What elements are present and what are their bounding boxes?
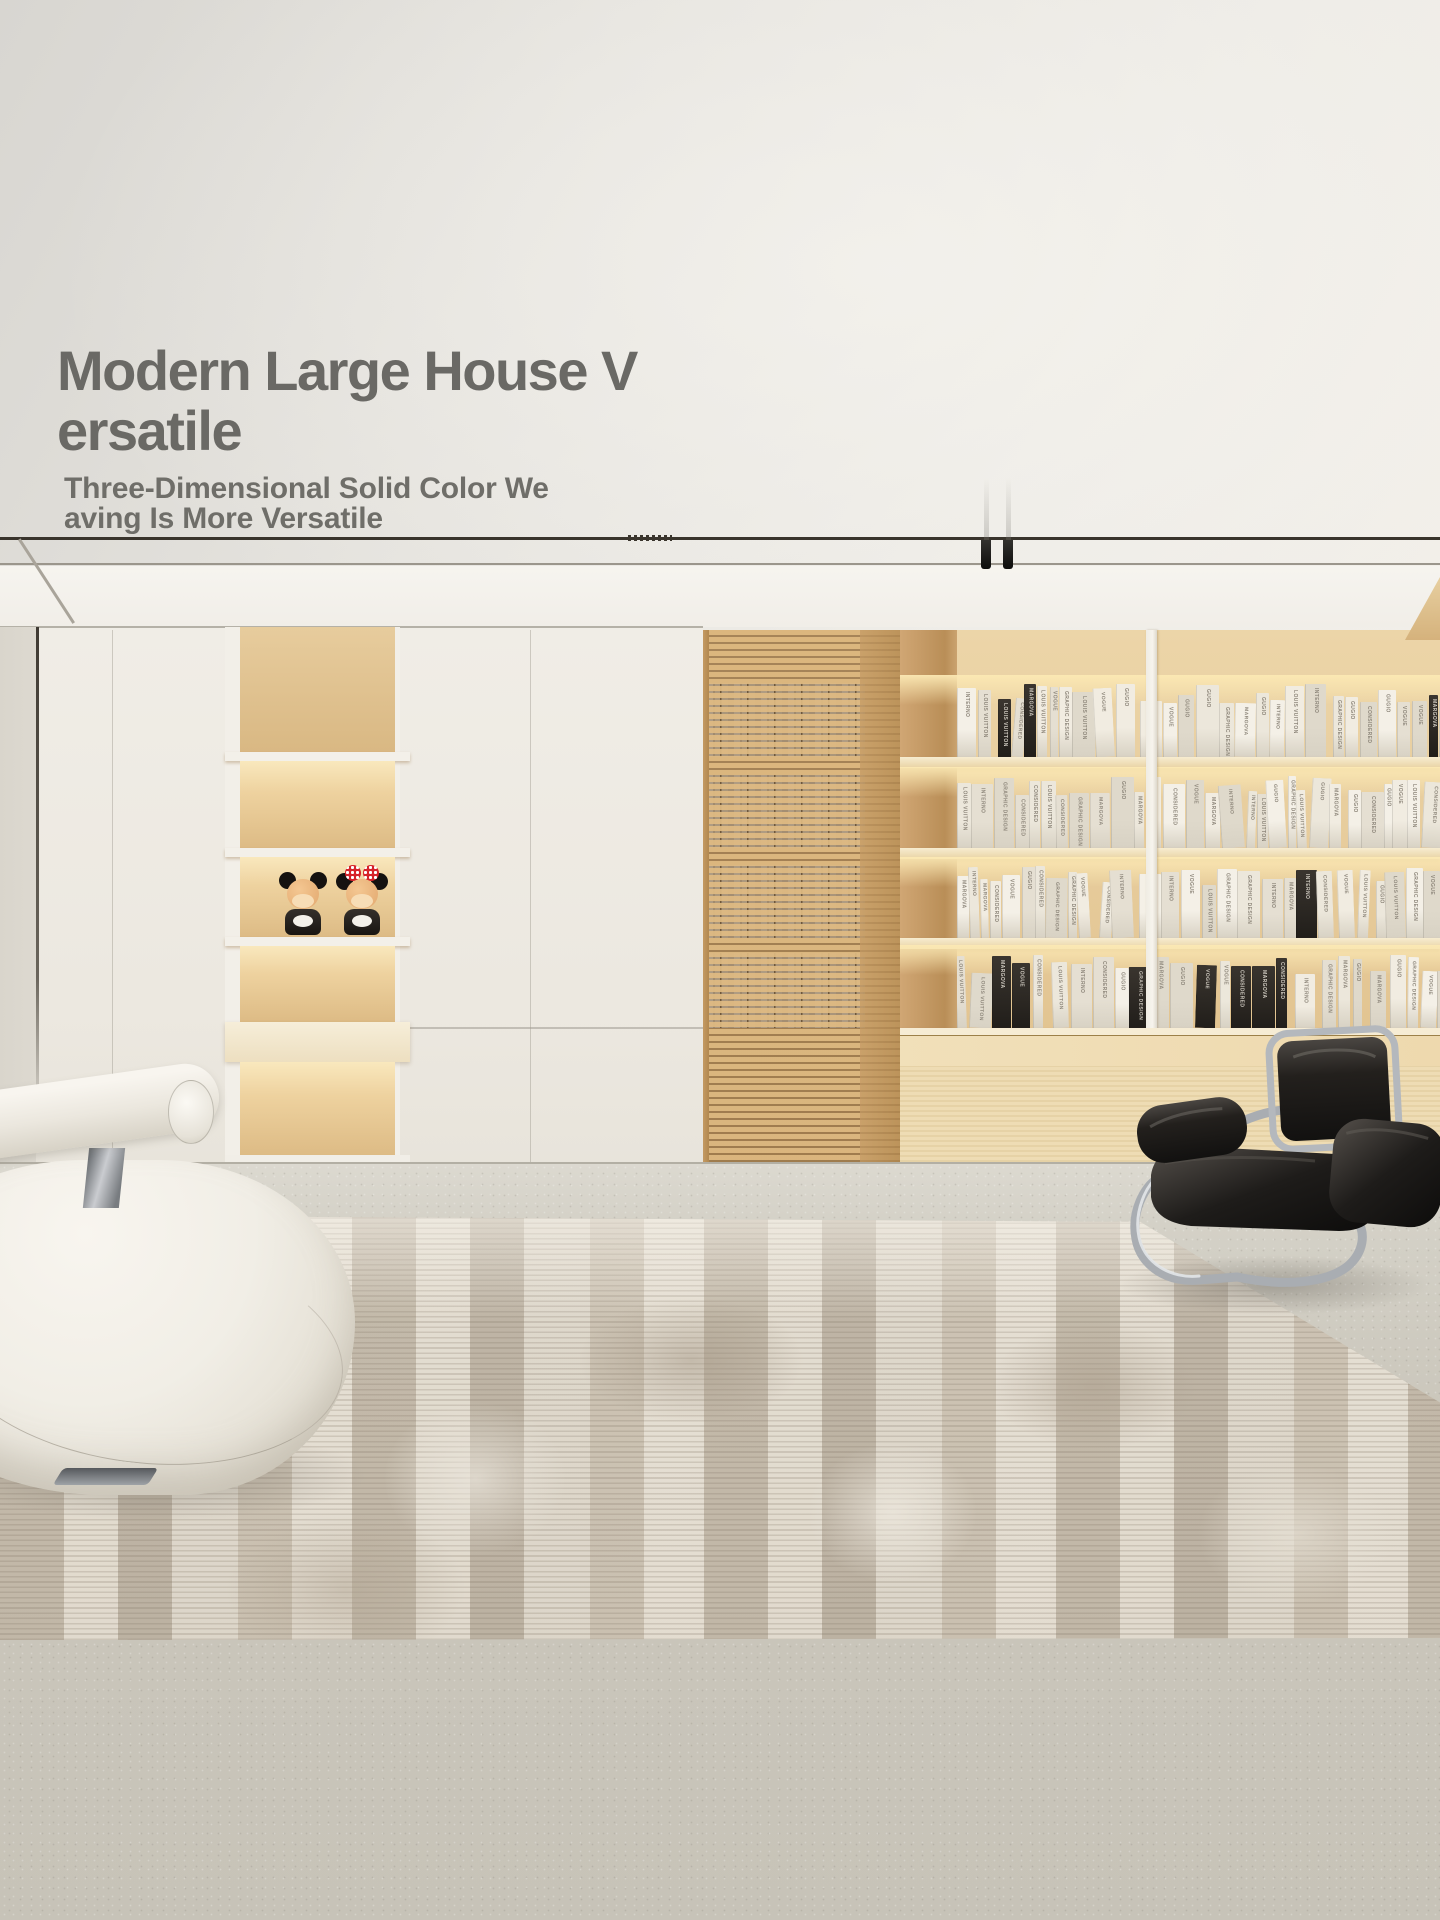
book-spine: INTERNO bbox=[1218, 784, 1245, 848]
book-spine: VOGUE bbox=[1337, 870, 1355, 938]
book-spine-title: MARGOVA bbox=[1028, 688, 1034, 717]
leather-chrome-chair bbox=[1085, 1025, 1440, 1325]
book-spine: INTERNO bbox=[1246, 791, 1257, 848]
book-spine-title: GUGIO bbox=[1386, 788, 1392, 807]
book-spine: MARGOVA bbox=[1370, 971, 1386, 1028]
book-spine-title: LOUIS VUITTON bbox=[982, 694, 988, 738]
sofa-backrest-endcap bbox=[168, 1080, 214, 1144]
book-spine-title: CONSIDERED bbox=[1032, 785, 1038, 822]
book-spine-title: LOUIS VUITTON bbox=[1081, 696, 1087, 740]
book-spine-title: INTERNO bbox=[964, 692, 970, 717]
book-spine-title: GUGIO bbox=[1123, 688, 1129, 707]
book-spine: GRAPHIC DESIGN bbox=[1406, 868, 1423, 938]
book-spine-title: CONSIDERED bbox=[1059, 799, 1065, 836]
book-spine: GUGIO bbox=[1265, 780, 1287, 848]
book-spine: CONSIDERED bbox=[1093, 957, 1114, 1028]
book-spine-title: CONSIDERED bbox=[993, 885, 999, 922]
book-spine: VOGUE bbox=[1050, 687, 1058, 757]
niche-shelf bbox=[225, 937, 410, 946]
book-spine: CONSIDERED bbox=[1015, 795, 1029, 848]
book-spine-title: MARGOVA bbox=[1242, 707, 1249, 736]
book-spine-title: LOUIS VUITTON bbox=[962, 787, 968, 831]
wood-slat-screen bbox=[703, 630, 900, 1163]
display-niche-interior bbox=[240, 627, 395, 1155]
book-spine-title: CONSIDERED bbox=[1038, 870, 1044, 907]
book-spine: LOUIS VUITTON bbox=[1357, 870, 1371, 938]
book-spine-title: GUGIO bbox=[1272, 784, 1279, 803]
book-spine: MARGOVA bbox=[1024, 684, 1036, 757]
book-spine: LOUIS VUITTON bbox=[1037, 686, 1047, 757]
book-spine: GUGIO bbox=[1353, 959, 1362, 1028]
book-spine-title: INTERNO bbox=[1249, 795, 1256, 821]
book-spine-title: CONSIDERED bbox=[1279, 962, 1285, 999]
minnie-muzzle bbox=[351, 894, 373, 908]
ceiling-spotlight-icon bbox=[1003, 540, 1013, 569]
book-spine: GRAPHIC DESIGN bbox=[1219, 703, 1234, 757]
book-spine-title: GUGIO bbox=[1026, 871, 1032, 890]
book-spine-title: GRAPHIC DESIGN bbox=[1002, 782, 1008, 831]
book-spine-title: VOGUE bbox=[1168, 707, 1174, 727]
book-spine-title: CONSIDERED bbox=[1101, 961, 1107, 998]
book-spine-title: MARGOVA bbox=[1376, 975, 1382, 1004]
book-spine: LOUIS VUITTON bbox=[1202, 885, 1216, 938]
book-spine-title: VOGUE bbox=[1204, 969, 1211, 989]
book-spine-title: LOUIS VUITTON bbox=[978, 977, 986, 1021]
book-spine-title: INTERNO bbox=[1303, 978, 1309, 1003]
book-spine-title: INTERNO bbox=[1270, 883, 1276, 908]
headline-line2: ersatile bbox=[57, 401, 697, 461]
book-spine-title: INTERNO bbox=[1227, 789, 1235, 815]
book-spine: CONSIDERED bbox=[1361, 792, 1384, 848]
book-spine: GUGIO bbox=[1345, 697, 1358, 757]
book-spine-title: GRAPHIC DESIGN bbox=[1327, 964, 1333, 1013]
book-spine-title: INTERNO bbox=[1274, 704, 1280, 729]
book-spine: MARGOVA bbox=[1134, 792, 1144, 848]
book-spine: CONSIDERED bbox=[1231, 966, 1251, 1028]
cabinet-seam bbox=[530, 630, 531, 1163]
book-spine: GRAPHIC DESIGN bbox=[1217, 869, 1237, 938]
book-spine: CONSIDERED bbox=[1055, 795, 1068, 848]
book-spine: MARGOVA bbox=[1252, 966, 1275, 1028]
book-spine: LOUIS VUITTON bbox=[998, 699, 1011, 757]
book-row: LOUIS VUITTONINTERNOGRAPHIC DESIGNCONSID… bbox=[957, 775, 1440, 848]
niche-wood-panel bbox=[240, 627, 395, 752]
book-spine-title: GRAPHIC DESIGN bbox=[1412, 872, 1418, 921]
book-spine-title: LOUIS VUITTON bbox=[1040, 690, 1046, 734]
book-spine-title: LOUIS VUITTON bbox=[1292, 690, 1298, 734]
book-spine-title: LOUIS VUITTON bbox=[1207, 889, 1213, 933]
book-spine: CONSIDERED bbox=[990, 881, 1001, 938]
mickey-muzzle bbox=[292, 894, 314, 908]
book-spine: GRAPHIC DESIGN bbox=[1288, 776, 1296, 848]
book-spine: GRAPHIC DESIGN bbox=[994, 778, 1014, 848]
cabinet-dark-seam bbox=[36, 627, 39, 1127]
book-spine: GUGIO bbox=[1116, 684, 1135, 757]
book-spine-title: VOGUE bbox=[1188, 874, 1194, 894]
book-spine-title: GUGIO bbox=[1385, 694, 1391, 713]
book-row: MARGOVAINTERNOMARGOVACONSIDEREDVOGUEGUGI… bbox=[957, 865, 1440, 938]
niche-shelf bbox=[225, 752, 410, 761]
book-spine-title: GRAPHIC DESIGN bbox=[1246, 875, 1252, 924]
book-spine: GRAPHIC DESIGN bbox=[1407, 957, 1419, 1028]
book-spine-title: CONSIDERED bbox=[1020, 799, 1026, 836]
ceiling-soffit-line bbox=[0, 563, 1440, 565]
book-spine-title: VOGUE bbox=[1079, 877, 1086, 897]
book-spine: GRAPHIC DESIGN bbox=[1059, 687, 1072, 757]
book-spine: GUGIO bbox=[1170, 963, 1193, 1028]
book-spine-title: GUGIO bbox=[1355, 963, 1361, 982]
book-spine: MARGOVA bbox=[1429, 695, 1438, 757]
minnie-hands bbox=[352, 915, 372, 927]
book-spine: LOUIS VUITTON bbox=[969, 973, 993, 1028]
book-spine: GUGIO bbox=[1115, 968, 1129, 1028]
book-spine: MARGOVA bbox=[980, 879, 989, 938]
ceiling-vent-dots bbox=[628, 535, 672, 541]
book-spine-title: GUGIO bbox=[1205, 689, 1211, 708]
book-spine: GUGIO bbox=[1348, 790, 1361, 848]
book-spine-title: LOUIS VUITTON bbox=[1057, 966, 1064, 1010]
book-spine: GRAPHIC DESIGN bbox=[1069, 793, 1089, 848]
book-spine-title: CONSIDERED bbox=[1366, 706, 1372, 743]
subheadline-line2: aving Is More Versatile bbox=[64, 504, 624, 534]
book-spine-title: CONSIDERED bbox=[1321, 875, 1328, 913]
book-spine: INTERNO bbox=[1295, 974, 1315, 1028]
book-spine: INTERNO bbox=[1262, 879, 1283, 938]
book-spine: INTERNO bbox=[1269, 700, 1285, 757]
book-spine-title: LOUIS VUITTON bbox=[1392, 876, 1399, 920]
book-spine-title: MARGOVA bbox=[1288, 882, 1294, 911]
book-spine-title: MARGOVA bbox=[961, 880, 967, 909]
book-spine: VOGUE bbox=[1092, 688, 1115, 757]
book-spine-title: VOGUE bbox=[1100, 692, 1107, 712]
book-spine: MARGOVA bbox=[1338, 956, 1350, 1028]
book-spine: CONSIDERED bbox=[1360, 702, 1377, 757]
book-spine-title: MARGOVA bbox=[1210, 797, 1216, 826]
book-spine-title: GUGIO bbox=[1352, 794, 1358, 813]
book-spine-title: GUGIO bbox=[1396, 959, 1402, 978]
book-spine-title: VOGUE bbox=[1009, 879, 1015, 899]
book-spine-title: LOUIS VUITTON bbox=[1411, 784, 1417, 828]
book-spine: CONSIDERED bbox=[1163, 784, 1185, 848]
spotlight-stem bbox=[1006, 478, 1011, 540]
bookshelf-white-divider bbox=[1146, 630, 1157, 1030]
niche-lit-shelf bbox=[240, 761, 395, 848]
book-spine: MARGOVA bbox=[1329, 784, 1341, 848]
book-spine: VOGUE bbox=[1397, 702, 1410, 757]
book-spine: INTERNO bbox=[1071, 964, 1092, 1028]
book-spine-title: GRAPHIC DESIGN bbox=[1336, 700, 1342, 749]
book-spine-title: LOUIS VUITTON bbox=[957, 960, 965, 1004]
book-spine-title: VOGUE bbox=[1429, 875, 1435, 895]
book-spine: VOGUE bbox=[1075, 873, 1091, 938]
book-spine: LOUIS VUITTON bbox=[1295, 790, 1307, 848]
book-spine-title: LOUIS VUITTON bbox=[1260, 798, 1266, 842]
book-spine: CONSIDERED bbox=[1421, 782, 1440, 848]
book-spine-title: LOUIS VUITTON bbox=[1298, 794, 1305, 838]
book-spine: VOGUE bbox=[1423, 871, 1440, 938]
book-spine-title: CONSIDERED bbox=[1239, 970, 1245, 1007]
book-spine-title: INTERNO bbox=[1168, 876, 1174, 901]
book-spine: LOUIS VUITTON bbox=[1285, 686, 1304, 757]
book-spine: MARGOVA bbox=[992, 956, 1011, 1028]
book-spine: GUGIO bbox=[1384, 784, 1392, 848]
book-spine-title: VOGUE bbox=[1193, 784, 1199, 804]
minnie-mouse-figurine bbox=[336, 865, 388, 937]
book-spine-title: GUGIO bbox=[1318, 782, 1325, 801]
book-spine-title: VOGUE bbox=[1427, 975, 1434, 995]
book-spine-title: GRAPHIC DESIGN bbox=[1224, 707, 1230, 756]
book-spine: GRAPHIC DESIGN bbox=[1045, 878, 1068, 938]
book-spine-title: GRAPHIC DESIGN bbox=[1137, 971, 1143, 1020]
book-spine: LOUIS VUITTON bbox=[1051, 962, 1069, 1028]
book-spine: LOUIS VUITTON bbox=[1041, 781, 1056, 848]
book-spine: VOGUE bbox=[1163, 703, 1177, 757]
book-spine-title: CONSIDERED bbox=[1036, 959, 1042, 996]
book-spine-title: INTERNO bbox=[980, 788, 986, 813]
book-spine-title: CONSIDERED bbox=[1172, 788, 1178, 825]
niche-counter bbox=[225, 1022, 410, 1062]
book-spine: CONSIDERED bbox=[1316, 871, 1334, 938]
book-spine: LOUIS VUITTON bbox=[957, 956, 967, 1028]
book-spine: VOGUE bbox=[1412, 701, 1427, 757]
book-spine-title: GRAPHIC DESIGN bbox=[1077, 797, 1083, 846]
book-spine: CONSIDERED bbox=[1033, 955, 1043, 1028]
book-spine-title: GRAPHIC DESIGN bbox=[1410, 961, 1417, 1010]
book-spine: VOGUE bbox=[1186, 780, 1204, 848]
book-spine: LOUIS VUITTON bbox=[957, 783, 971, 848]
book-spine-title: LOUIS VUITTON bbox=[1046, 785, 1052, 829]
book-spine: CONSIDERED bbox=[1035, 866, 1045, 938]
book-spine-title: VOGUE bbox=[1223, 965, 1229, 985]
book-spine: GUGIO bbox=[1111, 777, 1134, 848]
book-spine-title: GUGIO bbox=[1349, 701, 1355, 720]
book-spine: GRAPHIC DESIGN bbox=[1322, 960, 1336, 1028]
ceiling-track-line bbox=[0, 537, 1440, 540]
book-spine-title: VOGUE bbox=[1019, 967, 1025, 987]
book-spine-title: INTERNO bbox=[1079, 968, 1085, 993]
book-spine-title: CONSIDERED bbox=[1370, 796, 1376, 833]
book-spine: GUGIO bbox=[1256, 693, 1269, 757]
screen-stile bbox=[860, 630, 900, 1163]
book-spine-title: MARGOVA bbox=[1137, 796, 1143, 825]
book-spine: VOGUE bbox=[1220, 961, 1230, 1028]
sofa-chrome-bracket bbox=[83, 1148, 125, 1208]
book-spine: LOUIS VUITTON bbox=[978, 690, 991, 757]
book-spine-title: MARGOVA bbox=[1431, 699, 1437, 728]
book-spine-title: MARGOVA bbox=[1333, 788, 1339, 817]
niche-lit-shelf bbox=[240, 946, 395, 1022]
book-spine: INTERNO bbox=[971, 784, 993, 848]
book-spine: GUGIO bbox=[1022, 867, 1035, 938]
niche-lit-shelf bbox=[240, 1062, 395, 1155]
book-spine-title: MARGOVA bbox=[1158, 961, 1164, 990]
book-spine: INTERNO bbox=[1305, 684, 1326, 757]
book-spine-title: MARGOVA bbox=[981, 883, 988, 912]
book-spine-title: INTERNO bbox=[1304, 874, 1310, 899]
book-spine: GUGIO bbox=[1390, 955, 1406, 1028]
book-spine-title: MARGOVA bbox=[1342, 960, 1348, 989]
book-spine: VOGUE bbox=[1002, 875, 1020, 938]
book-spine: VOGUE bbox=[1012, 963, 1030, 1028]
cabinet-seam bbox=[398, 1027, 703, 1029]
book-spine: MARGOVA bbox=[1090, 793, 1110, 848]
book-spine: MARGOVA bbox=[1234, 703, 1256, 757]
book-spine: INTERNO bbox=[1296, 870, 1317, 938]
book-spine: VOGUE bbox=[1195, 965, 1217, 1028]
book-spine: GUGIO bbox=[1196, 685, 1219, 757]
ceiling-soffit bbox=[0, 566, 1440, 627]
book-spine-title: VOGUE bbox=[1342, 874, 1349, 894]
book-spine-title: GUGIO bbox=[1120, 972, 1126, 991]
book-spine: INTERNO bbox=[1161, 872, 1179, 938]
sofa-chrome-base bbox=[53, 1468, 159, 1485]
book-spine-title: INTERNO bbox=[1313, 688, 1319, 713]
book-spine-title: INTERNO bbox=[970, 871, 977, 896]
mickey-hands bbox=[293, 915, 313, 927]
mickey-mouse-figurine bbox=[278, 872, 328, 937]
book-spine-title: MARGOVA bbox=[999, 960, 1005, 989]
book-spine: INTERNO bbox=[968, 867, 980, 938]
book-spine: GUGIO bbox=[1378, 690, 1396, 757]
book-spine: INTERNO bbox=[957, 688, 976, 757]
book-spine: MARGOVA bbox=[957, 876, 969, 938]
screen-stile bbox=[703, 630, 709, 1163]
book-spine: GRAPHIC DESIGN bbox=[1333, 696, 1344, 757]
book-spine-title: INTERNO bbox=[1118, 874, 1125, 900]
book-spine-title: GRAPHIC DESIGN bbox=[1225, 873, 1231, 922]
book-spine-title: GUGIO bbox=[1260, 697, 1266, 716]
book-spine-title: VOGUE bbox=[1397, 784, 1403, 804]
book-spine: LOUIS VUITTON bbox=[1384, 872, 1406, 938]
book-spine-title: CONSIDERED bbox=[1431, 786, 1439, 824]
book-spine-title: GUGIO bbox=[1379, 885, 1385, 904]
book-spine: LOUIS VUITTON bbox=[1072, 692, 1095, 757]
book-row: LOUIS VUITTONLOUIS VUITTONMARGOVAVOGUECO… bbox=[957, 953, 1440, 1028]
book-spine-title: LOUIS VUITTON bbox=[1361, 874, 1369, 918]
book-spine: LOUIS VUITTON bbox=[1407, 780, 1420, 848]
subheadline-line1: Three-Dimensional Solid Color We bbox=[64, 474, 624, 504]
book-spine: VOGUE bbox=[1181, 870, 1200, 938]
book-spine-title: MARGOVA bbox=[1097, 797, 1103, 826]
ceiling-spotlight-icon bbox=[981, 540, 991, 569]
book-spine: GUGIO bbox=[1178, 695, 1194, 757]
headline-line1: Modern Large House V bbox=[57, 341, 697, 401]
book-spine: CONSIDERED bbox=[1029, 781, 1040, 848]
book-row: INTERNOLOUIS VUITTONLOUIS VUITTONCONSIDE… bbox=[957, 683, 1440, 757]
headline: Modern Large House V ersatile bbox=[57, 341, 697, 461]
book-spine-title: VOGUE bbox=[1052, 691, 1058, 711]
book-spine-title: GRAPHIC DESIGN bbox=[1063, 691, 1069, 740]
book-spine-title: GRAPHIC DESIGN bbox=[1054, 882, 1061, 931]
book-spine: VOGUE bbox=[1420, 971, 1438, 1028]
book-spine-title: LOUIS VUITTON bbox=[1002, 703, 1008, 747]
spotlight-stem bbox=[984, 478, 989, 540]
book-spine-title: VOGUE bbox=[1417, 705, 1423, 725]
book-spine: MARGOVA bbox=[1284, 878, 1296, 938]
niche-shelf bbox=[225, 848, 410, 857]
book-spine: CONSIDERED bbox=[1276, 958, 1287, 1028]
book-spine-title: GUGIO bbox=[1184, 699, 1190, 718]
book-spine-title: GUGIO bbox=[1179, 967, 1185, 986]
book-spine-title: VOGUE bbox=[1401, 706, 1407, 726]
living-room-scene: INTERNOLOUIS VUITTONLOUIS VUITTONCONSIDE… bbox=[0, 0, 1440, 1920]
subheadline: Three-Dimensional Solid Color We aving I… bbox=[64, 474, 624, 534]
book-spine: VOGUE bbox=[1392, 780, 1407, 848]
book-spine-title: GUGIO bbox=[1120, 781, 1126, 800]
book-spine-title: MARGOVA bbox=[1261, 970, 1267, 999]
book-spine: GRAPHIC DESIGN bbox=[1237, 871, 1260, 938]
book-spine: INTERNO bbox=[1109, 870, 1134, 938]
